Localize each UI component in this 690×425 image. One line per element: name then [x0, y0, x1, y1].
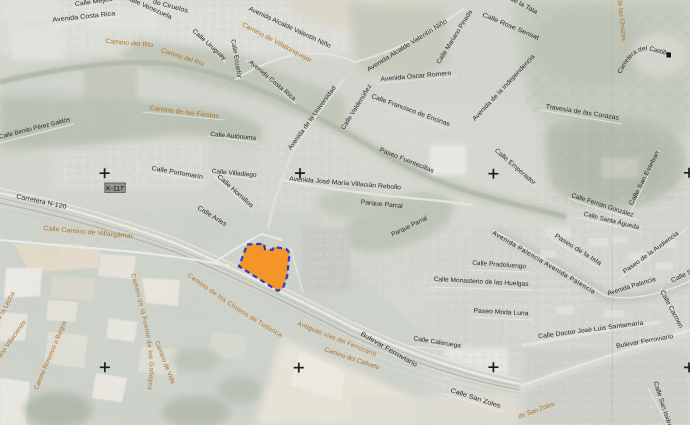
svg-text:K-117: K-117: [106, 185, 124, 192]
